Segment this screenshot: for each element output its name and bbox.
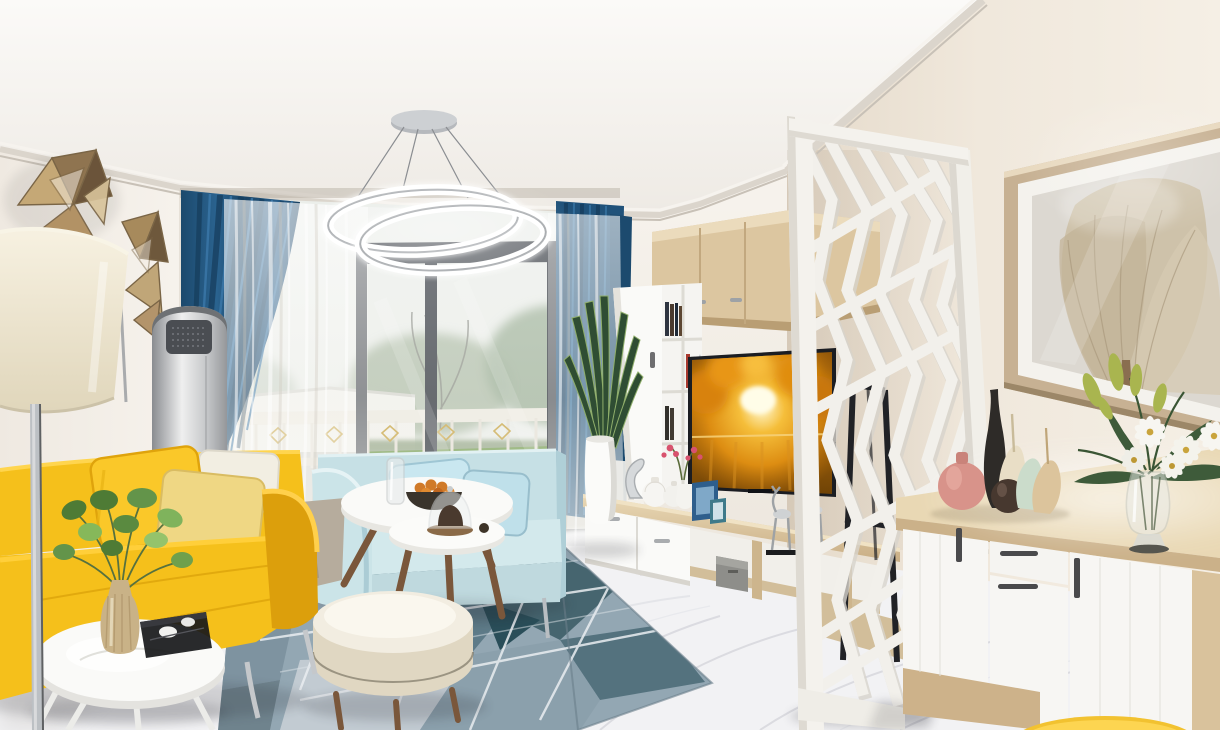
- sideboard-side-panel: [1192, 570, 1220, 730]
- living-room-render: [0, 0, 1220, 730]
- decor-sphere: [479, 523, 489, 533]
- glass-vase-small: [387, 458, 404, 504]
- sideboard-left-door: [903, 529, 988, 684]
- sideboard-right-door: [1070, 552, 1192, 730]
- cream-ottoman: [303, 591, 487, 730]
- pink-vase: [938, 462, 986, 510]
- lamp-shade: [0, 229, 128, 412]
- storage-boxes: [716, 556, 748, 592]
